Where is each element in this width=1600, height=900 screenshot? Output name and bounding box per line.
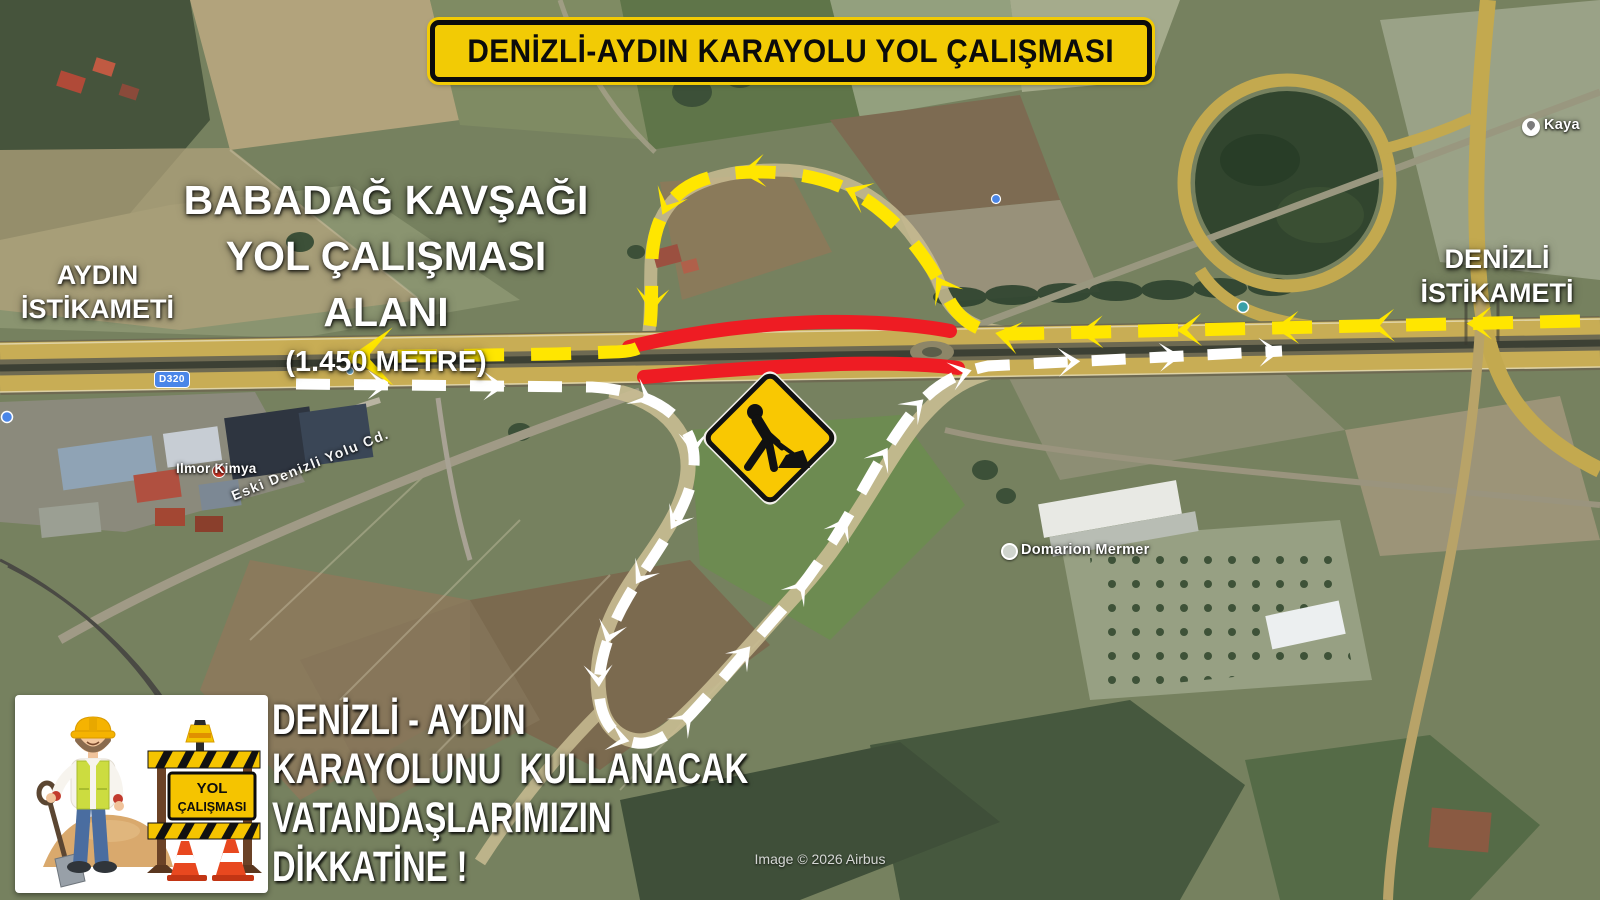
poi-label-ilmor-kimya: Ilmor Kimya <box>176 461 257 476</box>
closed-section-line-top <box>629 322 950 347</box>
map-attribution: Image © 2026 Airbus <box>715 851 925 867</box>
roadwork-cartoon-card: YOL ÇALIŞMASI <box>15 695 268 893</box>
route-arrowhead <box>1176 313 1202 347</box>
direction-denizli-line2: İSTİKAMETİ <box>1398 276 1596 310</box>
work-area-line3: (1.450 METRE) <box>160 340 612 384</box>
title-banner: DENİZLİ-AYDIN KARAYOLU YOL ÇALIŞMASI <box>430 20 1152 82</box>
sign-text-line2: ÇALIŞMASI <box>178 800 247 814</box>
striped-bar-top <box>148 751 260 768</box>
route-arrowhead <box>1369 309 1395 343</box>
announcement-line3: VATANDAŞLARIMIZIN <box>272 794 748 843</box>
barricade: YOL ÇALIŞMASI <box>147 720 262 881</box>
announcement-line2: KARAYOLUNU KULLANACAK <box>272 745 748 794</box>
striped-bar-bottom <box>148 823 260 839</box>
direction-denizli-line1: DENİZLİ <box>1398 242 1596 276</box>
work-area-line1: BABADAĞ KAVŞAĞI <box>160 172 612 228</box>
work-area-line2: YOL ÇALIŞMASI ALANI <box>160 228 612 340</box>
poster-root: DENİZLİ-AYDIN KARAYOLU YOL ÇALIŞMASI BAB… <box>0 0 1600 900</box>
poi-label-kaya: Kaya <box>1544 117 1580 133</box>
yol-calismasi-sign: YOL ÇALIŞMASI <box>169 773 255 819</box>
direction-label-denizli: DENİZLİ İSTİKAMETİ <box>1398 242 1596 310</box>
d320-shield: D320 <box>154 371 190 388</box>
map-pin-icon <box>1525 119 1536 130</box>
poi-marker-kaya <box>1522 118 1540 136</box>
roadwork-illustration: YOL ÇALIŞMASI <box>15 695 268 893</box>
direction-aydin-line1: AYDIN <box>5 258 190 292</box>
direction-label-aydin: AYDIN İSTİKAMETİ <box>5 258 190 326</box>
direction-aydin-line2: İSTİKAMETİ <box>5 292 190 326</box>
poi-label-domarion-mermer: Domarion Mermer <box>1021 542 1150 558</box>
poi-marker-domarion-mermer <box>1001 543 1018 560</box>
sign-text-line1: YOL <box>197 780 228 797</box>
roadwork-warning-sign <box>700 368 840 508</box>
announcement-line1: DENİZLİ - AYDIN <box>272 696 748 745</box>
announcement-line4: DİKKATİNE ! <box>272 843 748 892</box>
work-area-label: BABADAĞ KAVŞAĞI YOL ÇALIŞMASI ALANI (1.4… <box>160 172 612 384</box>
title-banner-text: DENİZLİ-AYDIN KARAYOLU YOL ÇALIŞMASI <box>468 33 1115 70</box>
traffic-cone <box>167 841 207 881</box>
